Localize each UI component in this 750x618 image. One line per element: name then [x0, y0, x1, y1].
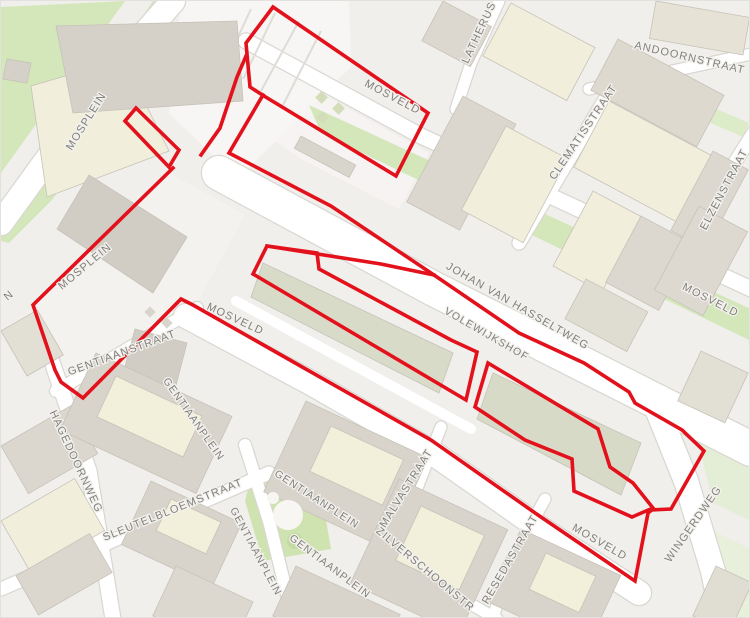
map-canvas[interactable]: MOSPLEINMOSPLEINMOSVELDLATHERUSANDOORNST… — [1, 1, 750, 618]
park-circle-white — [273, 500, 303, 530]
park-circle-small — [267, 492, 279, 504]
map-container: MOSPLEINMOSPLEINMOSVELDLATHERUSANDOORNST… — [0, 0, 750, 618]
block-nw-small — [3, 59, 31, 83]
block-nw-gray — [56, 21, 243, 113]
